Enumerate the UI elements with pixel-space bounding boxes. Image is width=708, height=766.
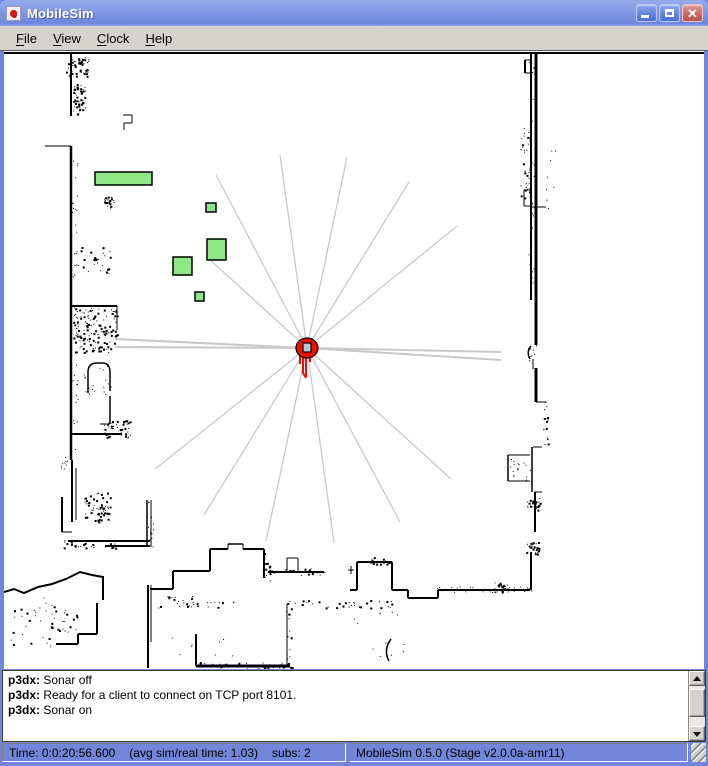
map-speckle	[534, 501, 536, 503]
map-speckle	[64, 542, 65, 543]
map-speckle	[121, 429, 123, 431]
map-speckle	[514, 590, 515, 591]
map-speckle	[75, 449, 76, 450]
map-speckle	[546, 200, 547, 201]
map-speckle	[197, 606, 198, 607]
map-speckle	[105, 197, 107, 199]
resize-grip[interactable]	[691, 743, 706, 762]
map-speckle	[104, 199, 105, 200]
map-speckle	[91, 308, 92, 309]
map-speckle	[44, 597, 45, 598]
map-speckle	[77, 84, 79, 86]
map-speckle	[532, 278, 533, 279]
message-log: p3dx: Sonar offp3dx: Ready for a client …	[2, 670, 706, 742]
map-speckle	[90, 310, 92, 312]
map-speckle	[54, 606, 56, 608]
map-speckle	[531, 480, 532, 481]
map-speckle	[81, 104, 83, 106]
log-line: p3dx: Sonar on	[8, 703, 683, 718]
map-speckle	[383, 562, 385, 564]
map-speckle	[274, 572, 275, 573]
map-speckle	[95, 330, 97, 332]
map-speckle	[514, 591, 515, 592]
map-speckle	[293, 570, 295, 572]
map-speckle	[546, 189, 547, 190]
map-speckle	[91, 546, 92, 547]
map-speckle	[83, 100, 84, 101]
map-speckle	[151, 538, 152, 539]
map-speckle	[64, 547, 66, 549]
map-speckle	[68, 632, 69, 633]
map-speckle	[536, 549, 538, 551]
map-speckle	[317, 572, 318, 573]
map-speckle	[232, 655, 233, 656]
map-speckle	[127, 432, 128, 433]
robot-sensor	[303, 343, 311, 352]
map-speckle	[83, 544, 85, 546]
map-speckle	[88, 271, 89, 272]
map-speckle	[49, 638, 51, 640]
map-speckle	[473, 587, 474, 588]
map-speckle	[102, 497, 104, 499]
map-speckle	[282, 663, 283, 664]
map-speckle	[93, 547, 94, 548]
map-speckle	[547, 438, 548, 439]
map-speckle	[98, 351, 100, 353]
map-speckle	[73, 101, 75, 103]
map-speckle	[82, 59, 84, 61]
map-speckle	[94, 264, 95, 265]
map-speckle	[521, 185, 522, 186]
map-speckle	[403, 651, 404, 652]
map-speckle	[526, 552, 528, 554]
map-speckle	[107, 346, 109, 348]
map-speckle	[524, 128, 525, 129]
map-speckle	[269, 567, 271, 569]
map-speckle	[160, 606, 162, 608]
map-speckle	[470, 587, 471, 588]
map-speckle	[174, 599, 176, 601]
map-speckle	[287, 659, 288, 660]
map-speckle	[92, 389, 93, 390]
minimize-button[interactable]	[636, 4, 657, 22]
map-speckle	[264, 558, 265, 559]
map-speckle	[532, 213, 533, 214]
obstacle-box[interactable]	[173, 257, 192, 275]
map-speckle	[178, 601, 179, 602]
map-speckle	[529, 137, 530, 138]
map-speckle	[101, 346, 103, 348]
map-speckle	[524, 171, 525, 172]
map-speckle	[530, 130, 531, 131]
map-speckle	[385, 561, 386, 562]
map-speckle	[500, 587, 501, 588]
map-speckle	[63, 629, 64, 630]
maximize-button[interactable]	[659, 4, 680, 22]
menu-help[interactable]: Help	[137, 29, 180, 48]
map-speckle	[175, 597, 176, 598]
map-speckle	[532, 271, 533, 272]
map-speckle	[72, 62, 74, 64]
map-speckle	[128, 428, 129, 429]
map-speckle	[108, 268, 110, 270]
map-speckle	[98, 509, 99, 510]
obstacle-box[interactable]	[207, 239, 226, 260]
map-speckle	[64, 612, 65, 613]
map-speckle	[281, 664, 283, 666]
map-speckle	[527, 507, 528, 508]
map-speckle	[359, 607, 360, 608]
map-speckle	[71, 57, 72, 58]
map-speckle	[64, 631, 65, 632]
map-speckle	[526, 480, 527, 481]
map-speckle	[100, 368, 101, 369]
map-speckle	[442, 590, 443, 591]
map-speckle	[13, 644, 15, 646]
map-speckle	[540, 503, 542, 505]
map-speckle	[73, 380, 74, 381]
map-speckle	[168, 596, 170, 598]
map-speckle	[94, 391, 95, 392]
map-speckle	[535, 177, 536, 178]
status-bar: Time: 0:0:20:56.600 (avg sim/real time: …	[2, 743, 706, 762]
map-speckle	[113, 426, 114, 427]
map-speckle	[22, 634, 23, 635]
map-speckle	[150, 539, 151, 540]
map-speckle	[108, 435, 109, 436]
map-speckle	[78, 58, 80, 60]
map-speckle	[555, 151, 556, 152]
map-speckle	[103, 511, 104, 512]
mobilesim-window: MobileSim ✕ FileViewClockHelp p3dx: Sona…	[0, 0, 708, 766]
map-speckle	[529, 588, 530, 589]
map-speckle	[263, 560, 264, 561]
map-speckle	[272, 571, 273, 572]
map-speckle	[535, 553, 537, 555]
sonar-ray	[280, 155, 307, 348]
map-speckle	[95, 259, 97, 261]
map-speckle	[82, 247, 84, 249]
map-speckle	[121, 435, 122, 436]
map-speckle	[74, 253, 75, 254]
map-speckle	[73, 161, 74, 162]
map-speckle	[110, 208, 111, 209]
map-speckle	[263, 663, 264, 664]
map-speckle	[104, 334, 105, 335]
map-speckle	[111, 309, 112, 310]
map-speckle	[535, 552, 536, 553]
map-speckle	[528, 172, 529, 173]
map-speckle	[30, 643, 32, 645]
map-speckle	[110, 257, 112, 259]
map-speckle	[76, 232, 77, 233]
map-speckle	[503, 589, 505, 591]
map-speckle	[529, 546, 531, 548]
maximize-icon	[665, 9, 674, 17]
obstacle-box[interactable]	[206, 203, 216, 212]
map-speckle	[219, 642, 220, 643]
map-speckle	[80, 88, 82, 90]
map-speckle	[87, 391, 88, 392]
map-speckle	[80, 316, 81, 317]
map-speckle	[501, 585, 502, 586]
map-speckle	[54, 618, 55, 619]
map-speckle	[115, 322, 116, 323]
map-speckle	[108, 508, 109, 509]
map-speckle	[125, 436, 127, 438]
map-speckle	[183, 602, 184, 603]
obstacle-box[interactable]	[95, 172, 152, 185]
map-speckle	[104, 512, 106, 514]
scroll-down-button[interactable]	[689, 726, 705, 741]
map-speckle	[84, 316, 86, 318]
map-speckle	[198, 606, 199, 607]
map-speckle	[151, 533, 152, 534]
map-speckle	[370, 600, 372, 602]
map-speckle	[302, 604, 304, 606]
map-speckle	[78, 265, 79, 266]
map-speckle	[78, 106, 80, 108]
map-speckle	[73, 276, 74, 277]
map-speckle	[285, 570, 286, 571]
map-speckle	[108, 383, 109, 384]
map-speckle	[532, 227, 533, 228]
map-speckle	[526, 476, 527, 477]
map-speckle	[97, 514, 98, 515]
map-speckle	[71, 542, 73, 544]
map-speckle	[92, 350, 94, 352]
map-speckle	[151, 517, 152, 518]
map-speckle	[531, 355, 532, 356]
map-speckle	[78, 326, 79, 327]
map-speckle	[128, 422, 130, 424]
map-speckle	[513, 475, 514, 476]
map-speckle	[546, 421, 548, 423]
map-speckle	[85, 107, 86, 108]
map-speckle	[83, 73, 84, 74]
map-speckle	[277, 571, 279, 573]
map-speckle	[107, 437, 109, 439]
map-speckle	[101, 331, 102, 332]
map-speckle	[308, 574, 310, 576]
simulation-map[interactable]	[4, 51, 704, 669]
map-speckle	[191, 598, 193, 600]
map-speckle	[106, 434, 108, 436]
map-speckle	[77, 196, 78, 197]
map-speckle	[115, 544, 116, 545]
log-scrollbar[interactable]	[688, 671, 705, 741]
map-speckle	[547, 418, 548, 419]
map-speckle	[380, 607, 382, 609]
map-speckle	[85, 378, 86, 379]
map-speckle	[524, 591, 525, 592]
menu-view[interactable]: View	[45, 29, 89, 48]
map-speckle	[103, 370, 104, 371]
map-speckle	[507, 585, 508, 586]
map-speckle	[81, 72, 82, 73]
map-speckle	[108, 422, 109, 423]
map-speckle	[108, 273, 109, 274]
map-speckle	[533, 282, 534, 283]
map-speckle	[80, 546, 81, 547]
scroll-up-button[interactable]	[689, 671, 705, 686]
map-speckle	[370, 562, 372, 564]
map-speckle	[530, 264, 531, 265]
map-speckle	[452, 589, 453, 590]
map-speckle	[357, 623, 358, 624]
map-speckle	[84, 87, 85, 88]
map-speckle	[167, 596, 168, 597]
menubar-items: FileViewClockHelp	[8, 29, 180, 48]
map-speckle	[84, 352, 86, 354]
map-speckle	[495, 590, 496, 591]
map-speckle	[64, 621, 65, 622]
map-speckle	[148, 527, 149, 528]
map-speckle	[532, 163, 533, 164]
map-speckle	[87, 339, 88, 340]
map-speckle	[104, 201, 106, 203]
map-speckle	[523, 163, 525, 165]
map-speckle	[74, 423, 75, 424]
map-speckle	[546, 428, 548, 430]
map-speckle	[259, 668, 260, 669]
map-speckle	[533, 350, 534, 351]
map-speckle	[83, 339, 85, 341]
map-speckle	[76, 333, 77, 334]
scroll-thumb[interactable]	[689, 689, 705, 717]
map-speckle	[223, 664, 225, 666]
map-speckle	[465, 591, 466, 592]
menu-clock[interactable]: Clock	[89, 29, 138, 48]
map-speckle	[74, 86, 75, 87]
map-speckle	[524, 133, 525, 134]
map-speckle	[518, 463, 519, 464]
map-speckle	[88, 61, 89, 62]
map-speckle	[312, 604, 313, 605]
map-speckle	[115, 310, 117, 312]
map-speckle	[110, 436, 111, 437]
map-speckle	[95, 520, 97, 522]
map-speckle	[79, 309, 81, 311]
map-speckle	[35, 612, 36, 613]
map-speckle	[215, 665, 217, 667]
map-speckle	[73, 619, 75, 621]
map-speckle	[508, 588, 509, 589]
map-speckle	[108, 202, 110, 204]
map-speckle	[547, 177, 548, 178]
map-speckle	[246, 663, 247, 664]
map-speckle	[113, 311, 114, 312]
map-speckle	[535, 292, 536, 293]
map-speckle	[83, 348, 85, 350]
map-speckle	[260, 665, 262, 667]
map-speckle	[74, 106, 75, 107]
map-speckle	[535, 273, 536, 274]
map-speckle	[74, 64, 76, 66]
map-speckle	[386, 564, 388, 566]
map-speckle	[521, 138, 522, 139]
map-speckle	[80, 99, 82, 101]
map-speckle	[68, 63, 70, 65]
close-button[interactable]: ✕	[682, 4, 703, 22]
map-speckle	[403, 644, 404, 645]
map-speckle	[460, 587, 461, 588]
map-speckle	[312, 573, 314, 575]
map-speckle	[88, 318, 89, 319]
map-speckle	[75, 546, 77, 548]
map-speckle	[385, 643, 386, 644]
map-speckle	[128, 437, 129, 438]
map-speckle	[538, 505, 540, 507]
map-speckle	[74, 275, 75, 276]
map-speckle	[66, 465, 67, 466]
menu-file[interactable]: File	[8, 29, 45, 48]
map-speckle	[520, 586, 521, 587]
map-speckle	[101, 520, 103, 522]
map-speckle	[537, 554, 539, 556]
map-speckle	[98, 309, 99, 310]
map-speckle	[93, 259, 95, 261]
map-speckle	[105, 433, 106, 434]
map-speckle	[112, 313, 114, 315]
map-speckle	[279, 668, 280, 669]
map-speckle	[76, 395, 77, 396]
map-speckle	[111, 386, 112, 387]
map-speckle	[104, 342, 106, 344]
map-speckle	[104, 350, 105, 351]
map-speckle	[73, 74, 74, 75]
map-speckle	[73, 208, 74, 209]
map-speckle	[40, 621, 41, 622]
map-speckle	[104, 362, 105, 363]
map-speckle	[83, 333, 85, 335]
map-speckle	[85, 72, 86, 73]
map-speckle	[97, 493, 98, 494]
map-speckle	[62, 463, 63, 464]
map-speckle	[80, 70, 82, 72]
map-speckle	[76, 210, 77, 211]
window-title: MobileSim	[27, 6, 636, 21]
map-speckle	[186, 603, 188, 605]
map-speckle	[77, 380, 78, 381]
title-bar[interactable]: MobileSim ✕	[0, 0, 708, 26]
map-speckle	[87, 323, 88, 324]
map-speckle	[107, 507, 108, 508]
map-speckle	[73, 420, 74, 421]
map-speckle	[328, 607, 329, 608]
map-speckle	[86, 503, 87, 504]
map-speckle	[171, 597, 172, 598]
map-speckle	[531, 164, 532, 165]
map-speckle	[78, 305, 79, 306]
map-speckle	[538, 542, 540, 544]
map-speckle	[311, 569, 312, 570]
map-speckle	[527, 588, 528, 589]
map-speckle	[93, 333, 95, 335]
obstacle-box[interactable]	[195, 292, 204, 301]
map-speckle	[77, 351, 78, 352]
map-speckle	[86, 500, 88, 502]
map-speckle	[114, 315, 116, 317]
map-speckle	[98, 259, 99, 260]
map-speckle	[106, 349, 107, 350]
map-speckle	[529, 254, 530, 255]
map-speckle	[65, 463, 66, 464]
map-speckle	[288, 636, 289, 637]
map-speckle	[115, 548, 117, 550]
map-speckle	[266, 575, 267, 576]
menu-bar: FileViewClockHelp	[0, 26, 708, 51]
